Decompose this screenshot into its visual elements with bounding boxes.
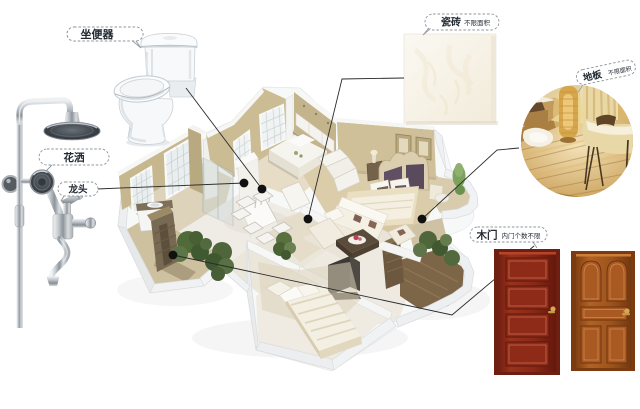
svg-text:坐便器: 坐便器 <box>81 27 115 41</box>
svg-text:瓷砖: 瓷砖 <box>441 16 461 29</box>
svg-text:内门个数不限: 内门个数不限 <box>502 231 542 240</box>
svg-text:不限面积: 不限面积 <box>464 18 491 27</box>
svg-text:木门: 木门 <box>476 229 498 242</box>
svg-text:龙头: 龙头 <box>67 184 88 196</box>
svg-text:花洒: 花洒 <box>64 151 85 164</box>
